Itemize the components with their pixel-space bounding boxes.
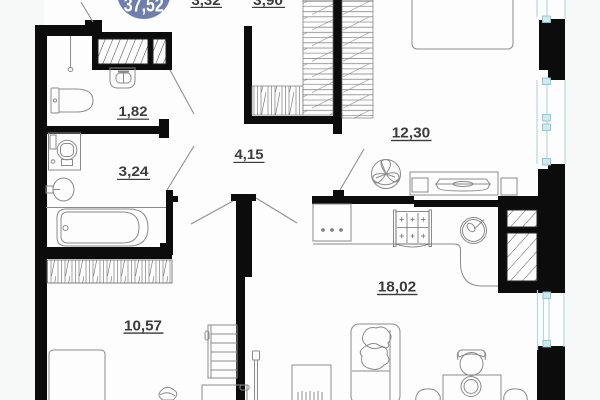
svg-text:37,52: 37,52 — [124, 0, 164, 16]
svg-text:12,30: 12,30 — [392, 124, 431, 141]
svg-text:10,57: 10,57 — [124, 317, 162, 334]
svg-text:3,24: 3,24 — [119, 163, 149, 179]
svg-text:4,15: 4,15 — [235, 146, 264, 162]
svg-text:18,02: 18,02 — [378, 278, 417, 295]
svg-text:1,82: 1,82 — [119, 103, 148, 119]
